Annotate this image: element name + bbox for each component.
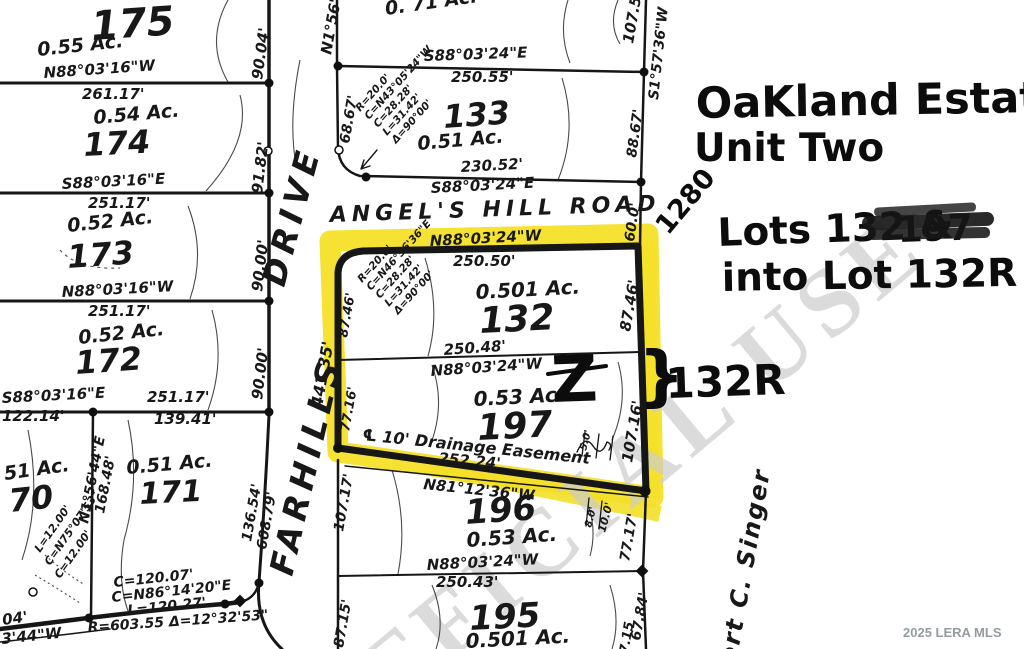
lot-133-acreage: 0.51 Ac. [417, 126, 505, 155]
edge-top-right: 107.5 [619, 0, 645, 45]
lot-173-acreage: 0.52 Ac. [66, 206, 154, 237]
title-line1: OaKland Estates, [695, 72, 1024, 129]
z-mark: Z [550, 342, 599, 418]
lot-171-number: 171 [139, 474, 203, 512]
strikeout-scribble [862, 202, 994, 240]
plat-map: OFFICIAL USE [0, 0, 1024, 649]
lot-170-number: 70 [7, 478, 55, 520]
combined-lot-label: 132R [665, 355, 787, 408]
lot-173-number: 173 [66, 233, 135, 276]
distance-173: 251.17' [88, 302, 150, 320]
lot-175-acreage: 0.55 Ac. [36, 30, 124, 61]
distance-172c: 139.41' [154, 410, 216, 428]
lot-172-number: 172 [74, 339, 143, 382]
bearing-173: N88°03'16"W [61, 277, 175, 301]
side-name: ert C. Singer [714, 466, 776, 649]
curve-arrow [361, 150, 377, 169]
credit-text: 2025 LERA MLS [903, 625, 1002, 640]
distance-172a: 251.17' [147, 388, 209, 406]
fragment-distance: 04' [1, 608, 29, 629]
lot-132-number: 132 [478, 297, 555, 342]
distance-133-south: 230.52' [460, 155, 523, 176]
distance-132-north: 250.50' [453, 252, 515, 270]
road-angels-hill: ANGEL'S HILL ROAD [327, 191, 661, 228]
bearing-174: S88°03'16"E [61, 170, 166, 193]
distance-196-south: 250.43' [436, 573, 498, 591]
lot-174-number: 174 [82, 123, 151, 164]
note-line2: into Lot 132R [721, 251, 1017, 301]
distance-175: 261.17' [82, 85, 144, 103]
bearing-east-line: S1°57'36"W [646, 6, 672, 101]
road-farhills: FARHILLS [262, 353, 350, 579]
bearing-175: N88°03'16"W [43, 56, 157, 82]
bearing-drive: N1°56' [317, 0, 344, 56]
title-line2: Unit Two [694, 126, 884, 171]
bearing-172: S88°03'16"E [1, 384, 106, 407]
lot-195-acreage: 0.501 Ac. [465, 624, 571, 649]
edge-196-west: 107.17' [331, 472, 357, 532]
distance-133-north: 250.55' [451, 68, 513, 86]
bearing-133-north: S88°03'24"E [424, 43, 529, 65]
edge-133-east: 88.67' [624, 108, 647, 158]
edge-195-east-b: 7.15 [617, 620, 637, 649]
lot-top-acreage: 0. 71 Ac. [384, 0, 479, 20]
distance-172b: 122.14' [2, 407, 64, 425]
plat-map-scan: OFFICIAL USE [0, 0, 1024, 649]
